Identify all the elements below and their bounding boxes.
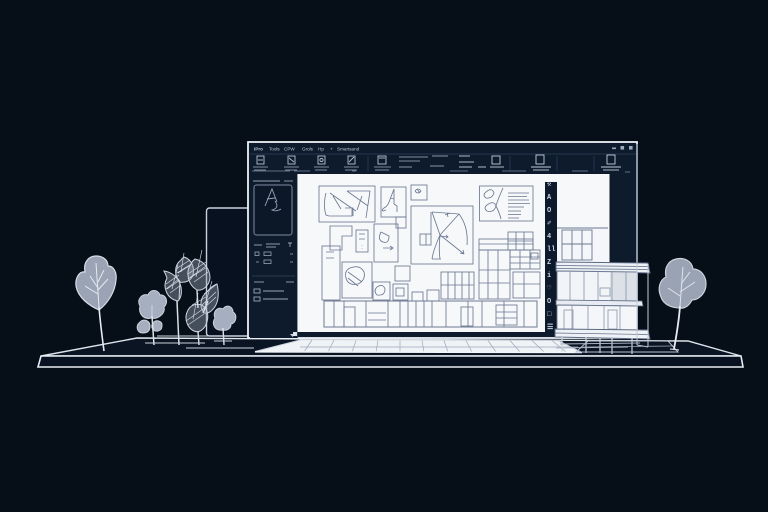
svg-text:O: O — [547, 207, 551, 215]
svg-text:O: O — [547, 298, 551, 306]
svg-text:+: + — [330, 147, 333, 152]
svg-text:CPW: CPW — [284, 147, 295, 152]
svg-text:IPro: IPro — [254, 147, 263, 152]
svg-text:Hp: Hp — [318, 147, 324, 152]
svg-text:☰: ☰ — [547, 324, 553, 332]
svg-text:✐: ✐ — [547, 220, 551, 228]
svg-text:Grols: Grols — [302, 147, 314, 152]
svg-text:Smartsand: Smartsand — [337, 147, 360, 152]
svg-text:Tools: Tools — [269, 147, 280, 152]
svg-text:ll: ll — [547, 246, 555, 254]
svg-text:i: i — [547, 272, 551, 280]
svg-text:Z: Z — [547, 259, 551, 267]
svg-text:4: 4 — [547, 233, 551, 241]
